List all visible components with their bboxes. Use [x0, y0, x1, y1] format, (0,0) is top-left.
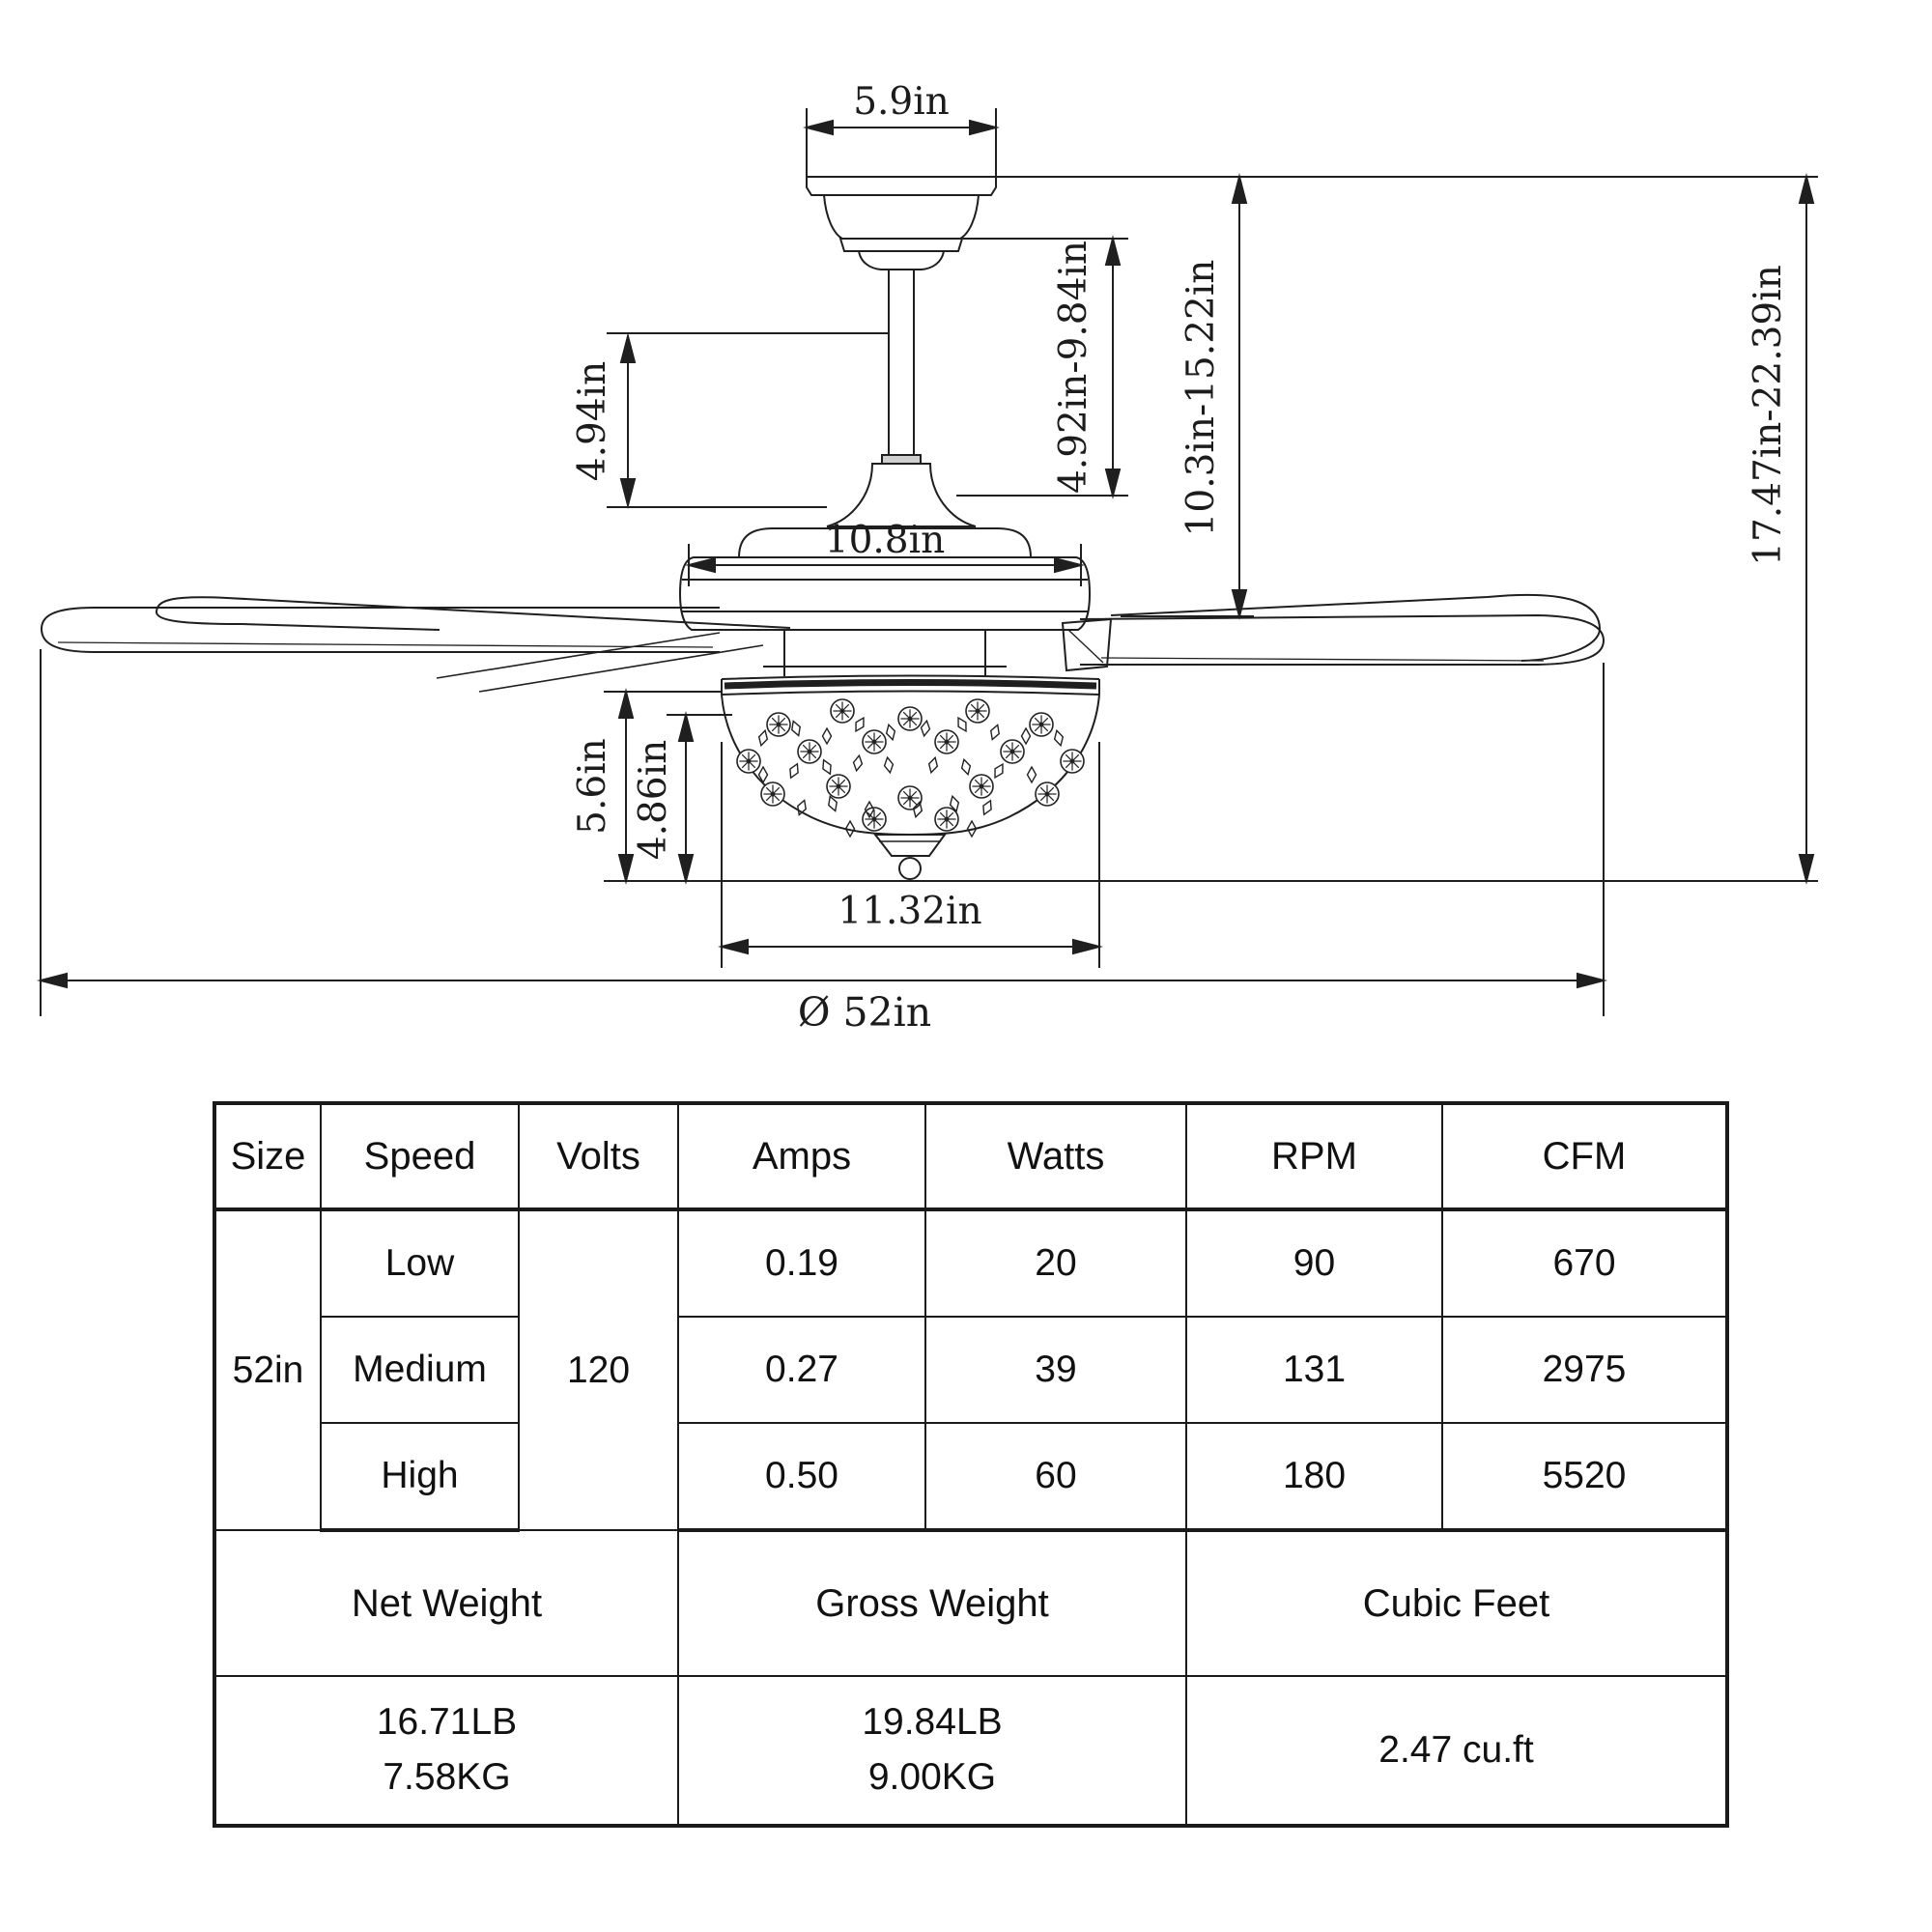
dim-label-light-height-inner: 4.86in	[632, 740, 675, 860]
fan-spec-sheet: { "dims": { "canopy_width": "5.9in", "up…	[0, 0, 1932, 1932]
bowl-crystal-rosettes	[737, 699, 1084, 831]
cell-cubic-feet: 2.47 cu.ft	[1186, 1676, 1727, 1826]
bowl-crystal-diamonds	[757, 716, 1065, 837]
cell-amps-high: 0.50	[678, 1423, 925, 1530]
table-row-medium: Medium 0.27 39 131 2975	[214, 1317, 1727, 1423]
dim-canopy-width: 5.9in	[807, 80, 996, 177]
cell-rpm-low: 90	[1186, 1209, 1442, 1317]
light-bowl	[722, 676, 1099, 880]
cell-amps-low: 0.19	[678, 1209, 925, 1317]
dim-label-mid-height: 10.3in-15.22in	[1179, 260, 1223, 537]
gross-weight-lb: 19.84LB	[679, 1695, 1185, 1750]
dim-label-motor-width: 10.8in	[825, 519, 945, 562]
cell-net-weight: 16.71LB 7.58KG	[214, 1676, 678, 1826]
dim-total-height: 17.47in-22.39in	[1747, 177, 1813, 881]
cell-amps-medium: 0.27	[678, 1317, 925, 1423]
cell-watts-high: 60	[925, 1423, 1186, 1530]
cell-cfm-medium: 2975	[1442, 1317, 1727, 1423]
dim-label-light-height-outer: 5.6in	[571, 738, 614, 835]
header-volts: Volts	[519, 1103, 678, 1209]
dim-label-total-height: 17.47in-22.39in	[1747, 265, 1790, 566]
fan-technical-drawing: 5.9in 4.94in 4.92in-9.84in 10.3in-15.22i…	[0, 0, 1932, 1063]
header-amps: Amps	[678, 1103, 925, 1209]
dim-label-downrod-length: 4.92in-9.84in	[1052, 241, 1095, 494]
dim-upper-height: 4.94in	[571, 336, 635, 505]
cell-rpm-high: 180	[1186, 1423, 1442, 1530]
header-rpm: RPM	[1186, 1103, 1442, 1209]
dim-label-canopy-width: 5.9in	[853, 80, 950, 124]
table-row-high: High 0.50 60 180 5520	[214, 1423, 1727, 1530]
header-watts: Watts	[925, 1103, 1186, 1209]
weight-header-row: Net Weight Gross Weight Cubic Feet	[214, 1530, 1727, 1676]
cell-cfm-high: 5520	[1442, 1423, 1727, 1530]
table-header-row: Size Speed Volts Amps Watts RPM CFM	[214, 1103, 1727, 1209]
header-size: Size	[214, 1103, 321, 1209]
cell-rpm-medium: 131	[1186, 1317, 1442, 1423]
dim-motor-width: 10.8in	[689, 519, 1081, 586]
dim-downrod-length: 4.92in-9.84in	[1052, 239, 1120, 496]
cell-cfm-low: 670	[1442, 1209, 1727, 1317]
cell-speed-medium: Medium	[321, 1317, 519, 1423]
dim-light-height-outer: 5.6in	[571, 692, 633, 881]
gross-weight-kg: 9.00KG	[679, 1750, 1185, 1805]
header-cubic-feet: Cubic Feet	[1186, 1530, 1727, 1676]
dim-label-blade-diameter: Ø 52in	[798, 989, 931, 1036]
dim-label-light-width: 11.32in	[838, 890, 981, 933]
dim-mid-height: 10.3in-15.22in	[1179, 177, 1246, 616]
weight-value-row: 16.71LB 7.58KG 19.84LB 9.00KG 2.47 cu.ft	[214, 1676, 1727, 1826]
net-weight-lb: 16.71LB	[216, 1695, 677, 1750]
cell-size: 52in	[214, 1209, 321, 1530]
net-weight-kg: 7.58KG	[216, 1750, 677, 1805]
header-net-weight: Net Weight	[214, 1530, 678, 1676]
dim-label-upper-height: 4.94in	[571, 361, 614, 481]
header-gross-weight: Gross Weight	[678, 1530, 1186, 1676]
table-row-low: 52in Low 120 0.19 20 90 670	[214, 1209, 1727, 1317]
downrod	[827, 270, 976, 526]
spec-table: Size Speed Volts Amps Watts RPM CFM 52in…	[213, 1101, 1725, 1828]
header-speed: Speed	[321, 1103, 519, 1209]
canopy	[807, 177, 996, 270]
dim-blade-diameter: Ø 52in	[41, 649, 1604, 1036]
header-cfm: CFM	[1442, 1103, 1727, 1209]
cell-speed-high: High	[321, 1423, 519, 1530]
cell-speed-low: Low	[321, 1209, 519, 1317]
cell-watts-low: 20	[925, 1209, 1186, 1317]
cell-volts: 120	[519, 1209, 678, 1530]
cell-watts-medium: 39	[925, 1317, 1186, 1423]
dim-light-height-inner: 4.86in	[632, 715, 693, 881]
cell-gross-weight: 19.84LB 9.00KG	[678, 1676, 1186, 1826]
